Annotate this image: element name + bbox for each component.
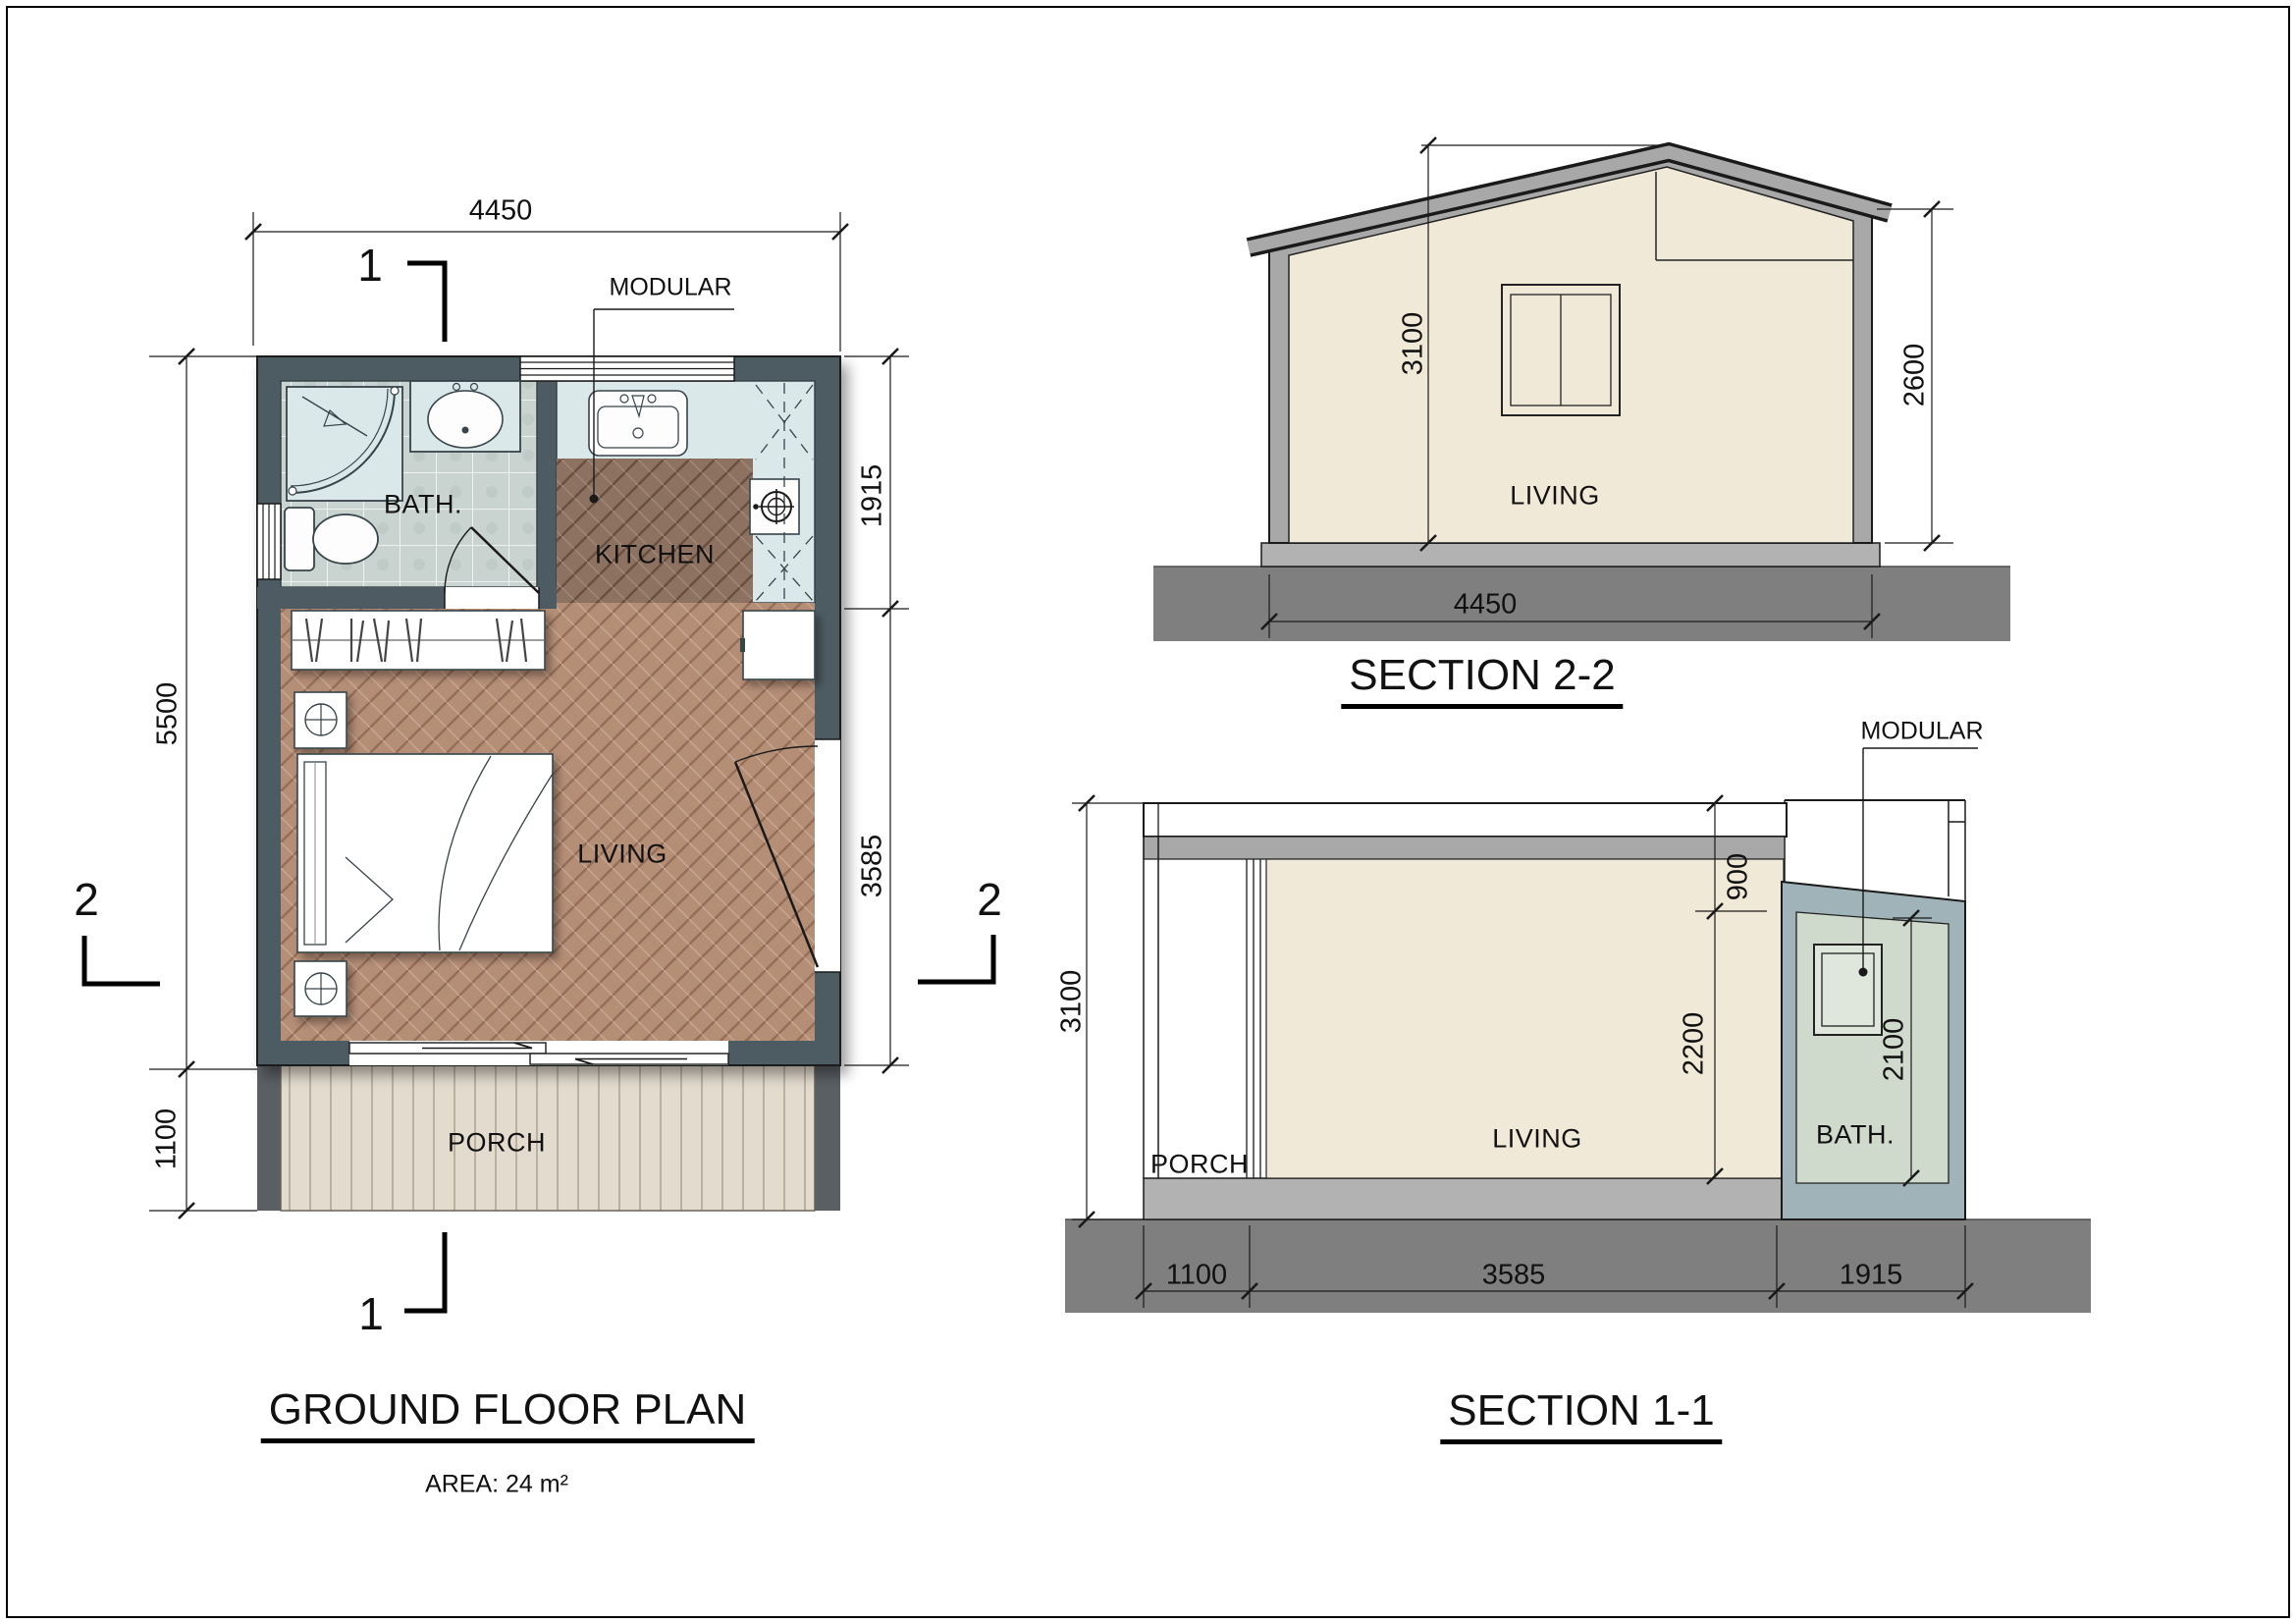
plan-room-bath: BATH.: [384, 492, 462, 518]
s22-dim-peak: 3100: [1400, 312, 1428, 376]
plan-dim-right-bottom: 3585: [859, 835, 887, 898]
plan-area: AREA: 24 m²: [425, 1473, 568, 1497]
plan-room-living: LIVING: [577, 841, 667, 868]
kitchen-floor: [557, 459, 753, 603]
cooktop: [750, 479, 799, 534]
section-1-1-drawing: [1065, 748, 2091, 1313]
s11-title: SECTION 1-1: [1440, 1389, 1722, 1444]
s22-room-living: LIVING: [1510, 483, 1600, 510]
s11-dim-porch-width: 1100: [1166, 1262, 1227, 1290]
plan-dim-porch-left: 1100: [153, 1109, 182, 1169]
plan-dim-width-top: 4450: [469, 197, 533, 226]
s11-dim-bath-width: 1915: [1840, 1262, 1903, 1290]
plan-marker-1-top: 1: [357, 243, 383, 288]
s11-room-bath: BATH.: [1816, 1122, 1895, 1149]
plan-title: GROUND FLOOR PLAN: [261, 1388, 755, 1443]
s11-room-living: LIVING: [1492, 1126, 1582, 1153]
ground-2-2: [1153, 567, 2010, 641]
s11-room-porch: PORCH: [1150, 1152, 1249, 1178]
drawing-graphics: [0, 0, 2296, 1624]
plan-marker-2-right: 2: [977, 877, 1002, 922]
plan-dim-right-top: 1915: [859, 464, 887, 528]
plan-room-kitchen: KITCHEN: [595, 542, 715, 568]
s11-dim-living-height: 2200: [1681, 1012, 1709, 1076]
porch-deck: [281, 1065, 815, 1211]
s11-dim-total-height: 3100: [1058, 970, 1087, 1034]
drawing-sheet: 4450 5500 1100 1915 3585 1 1 2 2 MODULAR…: [0, 0, 2296, 1624]
bookshelf: [292, 611, 545, 670]
bath-sink: [410, 381, 520, 452]
shower: [287, 387, 402, 501]
kitchen-sink: [589, 391, 687, 456]
plan-dim-height-left: 5500: [154, 682, 183, 746]
sliding-door: [349, 1041, 728, 1065]
plan-room-porch: PORCH: [448, 1130, 546, 1157]
s22-dim-eave: 2600: [1901, 344, 1930, 407]
plan-marker-2-left: 2: [74, 877, 99, 922]
window-2-2: [1502, 285, 1620, 415]
s11-modular-label: MODULAR: [1860, 720, 1983, 744]
bath-window: [257, 504, 281, 579]
s11-dim-bath-height: 2100: [1881, 1018, 1909, 1082]
bath-window-1-1: [1814, 945, 1882, 1035]
section-2-2-drawing: [1153, 137, 2010, 641]
kitchen-window: [520, 356, 734, 381]
s22-dim-width: 4450: [1454, 591, 1518, 620]
s11-dim-roof-offset: 900: [1725, 853, 1753, 900]
s11-dim-living-width: 3585: [1482, 1262, 1546, 1290]
plan-marker-1-bottom: 1: [358, 1291, 384, 1336]
s22-title: SECTION 2-2: [1341, 654, 1623, 709]
plan-modular-label: MODULAR: [609, 276, 731, 300]
side-table: [740, 611, 815, 679]
